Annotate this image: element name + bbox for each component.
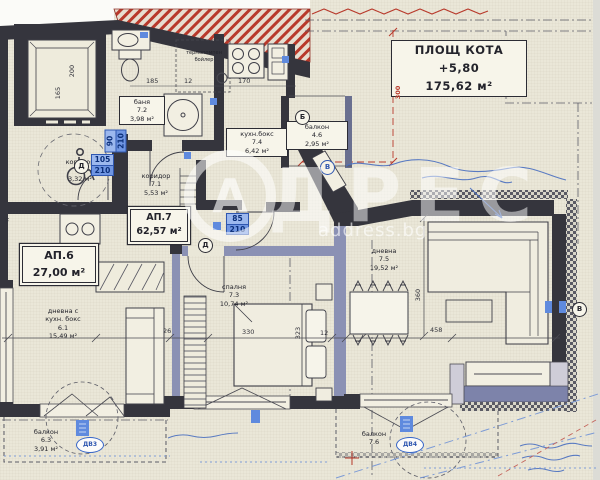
door-tag-90-210: 90210: [105, 130, 127, 153]
door-mark-b: Д: [198, 238, 213, 253]
living-furniture: [350, 222, 548, 345]
dim-elevator-depth: 200: [69, 57, 76, 77]
kitchen-fixtures: [228, 44, 288, 80]
dim-living-height: 360: [415, 281, 422, 301]
dim-bedroom-width: 330: [242, 329, 254, 336]
dim-bedroom-height: 323: [295, 319, 302, 339]
room-label-living-75: дневна 7.5 19,52 м²: [358, 247, 410, 272]
window-stamp-left: ДВ3: [76, 437, 104, 453]
room-label-kitchen: кухн.бокс 7.4 6,42 м²: [226, 128, 288, 157]
boiler-label: термопомпен бойлер: [178, 50, 230, 63]
ap7-name: АП.7: [133, 211, 185, 225]
door-tag-85-210: 85210: [226, 213, 249, 235]
label-f: F: [5, 218, 9, 226]
room-label-balcony-46: балкон 4.6 2,95 м²: [286, 121, 348, 150]
window-stamp-right: ДВ4: [396, 437, 424, 453]
door-mark-a: Д: [74, 159, 89, 174]
note-mark: В: [320, 160, 335, 175]
window-mark-right: В: [572, 302, 587, 317]
dim-top-a: 185: [146, 78, 158, 85]
dim-bedroom-gap: 12: [320, 330, 328, 337]
dim-living-width: 458: [430, 327, 442, 334]
elevator: [14, 24, 106, 126]
ap6-name: АП.6: [25, 248, 93, 265]
area-title-line1: ПЛОЩ КОТА +5,80: [394, 42, 524, 78]
dim-wall-t: 26: [163, 328, 171, 335]
room-label-bedroom: спалня 7.3 10,74 м²: [206, 283, 262, 308]
room-label-balcony-63: балкон 6.3 3,91 м²: [20, 428, 72, 453]
room-label-corridor-71: коридор 7.1 5,53 м²: [128, 172, 184, 197]
area-title-box: ПЛОЩ КОТА +5,80 175,62 м²: [391, 40, 527, 97]
ap6-area: 27,00 м²: [25, 265, 93, 282]
ap7-area: 62,57 м²: [133, 225, 185, 239]
dim-elevator-width: 165: [55, 79, 62, 99]
door-tag-105-210: 105210: [91, 154, 114, 176]
red-sawtooth: [312, 9, 488, 14]
dim-red-300: 300: [395, 79, 402, 99]
room-label-living-61: дневна с кухн. бокс 6.1 15,49 м²: [30, 307, 96, 341]
room-label-bath: баня 7.2 3,98 м²: [119, 96, 165, 125]
dim-top-b: 12: [184, 78, 192, 85]
floorplan-scan: ПЛОЩ КОТА +5,80 175,62 м² АП.7 62,57 м² …: [0, 0, 600, 480]
apartment6-label: АП.6 27,00 м²: [22, 246, 96, 283]
dim-top-c: 170: [238, 78, 250, 85]
apartment7-label: АП.7 62,57 м²: [130, 209, 188, 242]
balcony-mark: Б: [295, 110, 310, 125]
area-title-line2: 175,62 м²: [394, 78, 524, 96]
room-label-balcony-76: балкон 7.6: [348, 430, 400, 447]
